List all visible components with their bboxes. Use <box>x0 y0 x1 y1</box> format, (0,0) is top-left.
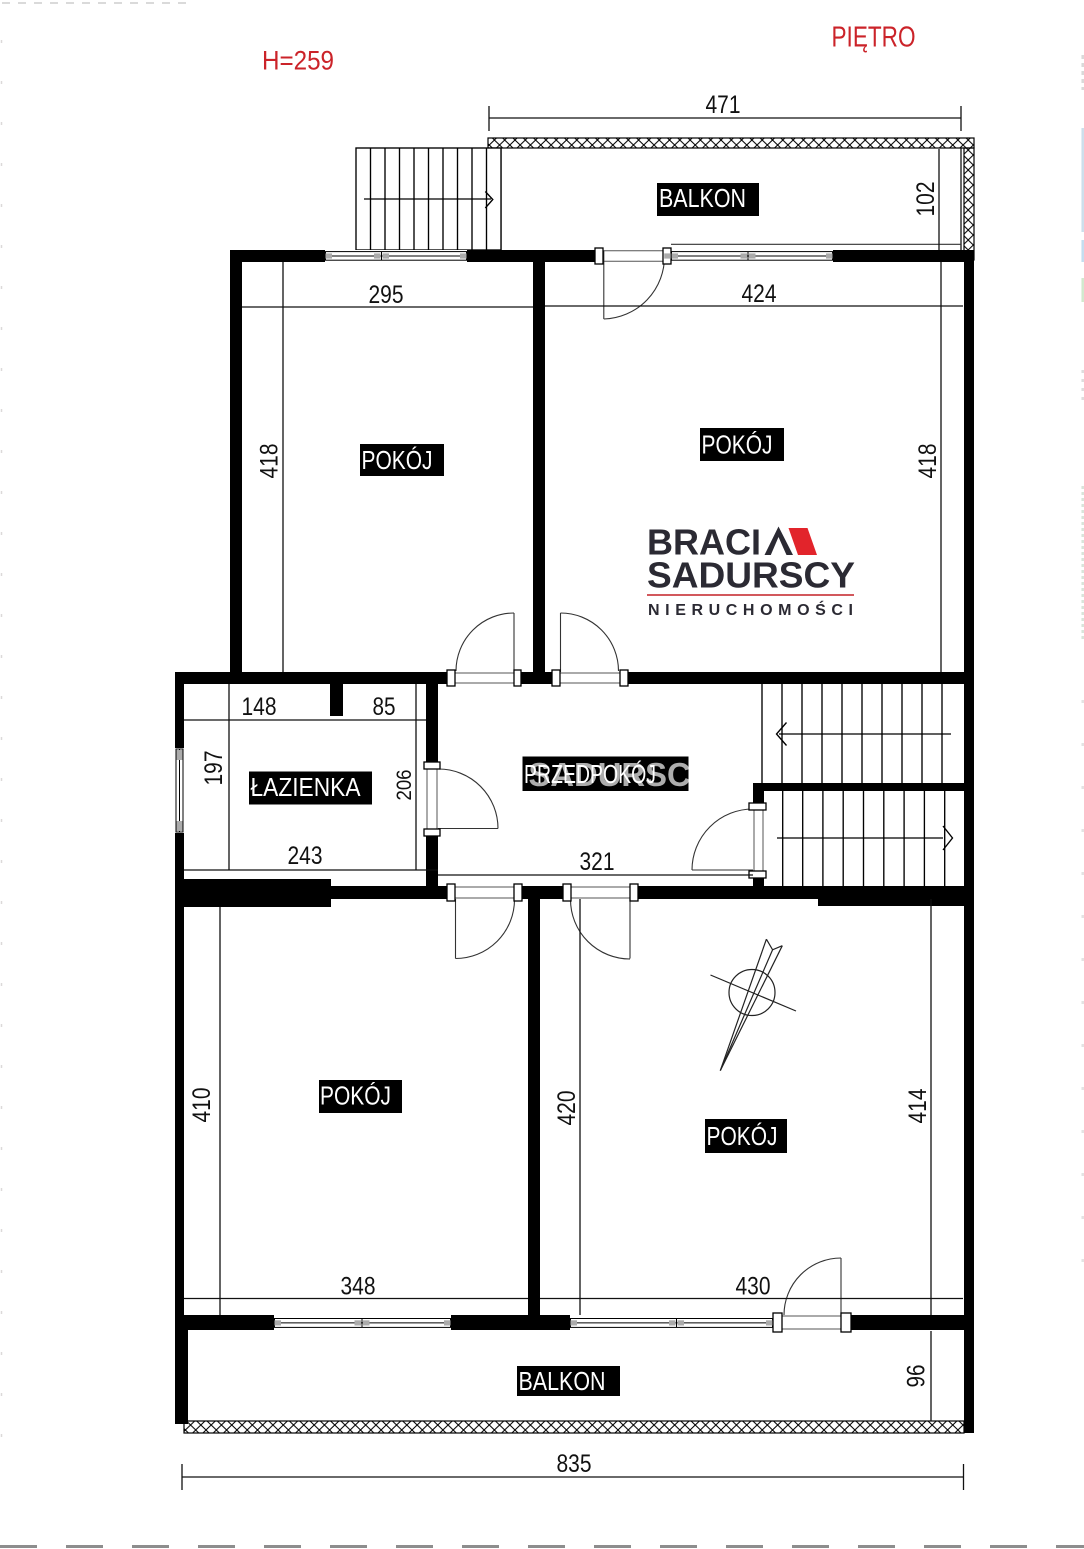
svg-text:POKÓJ: POKÓJ <box>362 445 433 475</box>
svg-text:243: 243 <box>288 842 323 870</box>
svg-text:NIERUCHOMOŚCI: NIERUCHOMOŚCI <box>648 600 859 619</box>
svg-text:SADURSCY: SADURSCY <box>647 555 855 596</box>
svg-text:418: 418 <box>914 444 942 479</box>
svg-text:430: 430 <box>736 1273 771 1301</box>
svg-text:197: 197 <box>200 751 228 786</box>
svg-text:414: 414 <box>904 1088 932 1123</box>
svg-text:85: 85 <box>373 693 396 721</box>
svg-text:POKÓJ: POKÓJ <box>707 1121 778 1151</box>
svg-text:ŁAZIENKA: ŁAZIENKA <box>251 772 362 802</box>
svg-text:148: 148 <box>242 693 277 721</box>
svg-text:BALKON: BALKON <box>659 183 746 213</box>
svg-text:206: 206 <box>393 770 416 801</box>
svg-text:410: 410 <box>188 1088 216 1123</box>
svg-text:H=259: H=259 <box>262 46 334 76</box>
svg-text:102: 102 <box>912 182 940 217</box>
svg-text:471: 471 <box>706 91 741 119</box>
svg-text:POKÓJ: POKÓJ <box>702 429 773 459</box>
svg-text:321: 321 <box>580 848 615 876</box>
svg-text:PRZEDPOKÓJ: PRZEDPOKÓJ <box>524 759 656 789</box>
svg-text:POKÓJ: POKÓJ <box>320 1080 391 1110</box>
svg-text:348: 348 <box>341 1273 376 1301</box>
svg-text:96: 96 <box>903 1365 931 1388</box>
svg-text:418: 418 <box>256 444 284 479</box>
svg-text:295: 295 <box>369 281 404 309</box>
svg-text:424: 424 <box>742 280 777 308</box>
svg-text:BALKON: BALKON <box>519 1366 606 1396</box>
svg-text:420: 420 <box>553 1091 581 1126</box>
svg-text:835: 835 <box>557 1450 592 1478</box>
svg-text:PIĘTRO: PIĘTRO <box>832 22 916 54</box>
